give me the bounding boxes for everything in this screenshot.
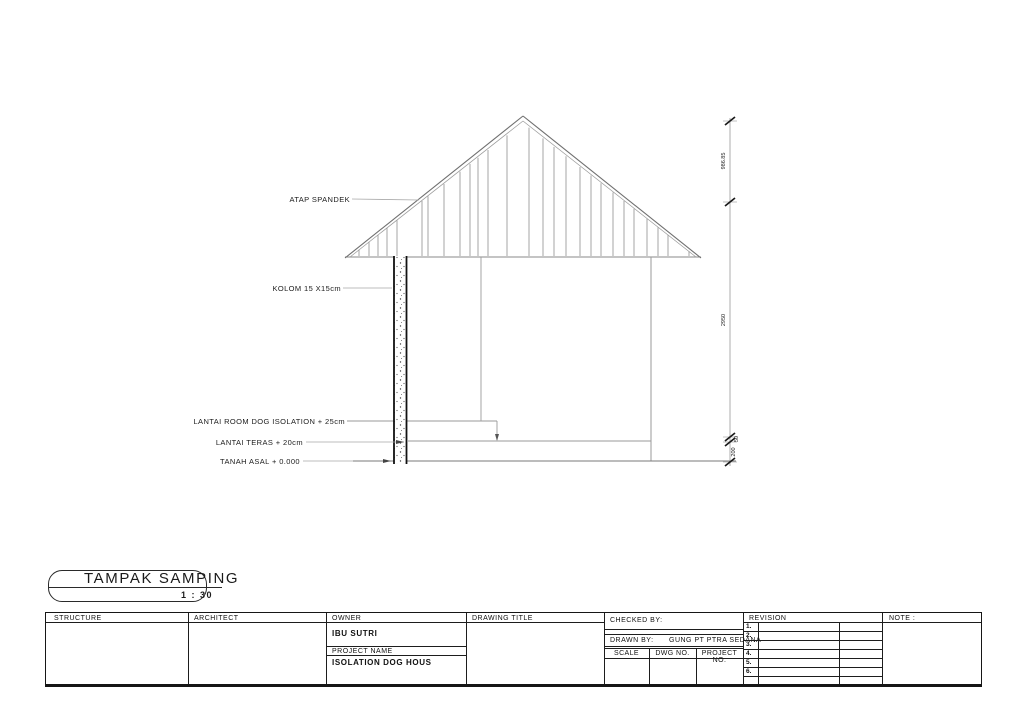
- ground-leader-arrowhead: [383, 459, 391, 463]
- revision-row-line: [743, 631, 882, 632]
- owner-value: IBU SUTRI: [332, 629, 377, 638]
- divider: [466, 613, 467, 684]
- project-name-value: ISOLATION DOG HOUS: [332, 658, 432, 667]
- drawn-by-box-bottom: [604, 646, 743, 647]
- revision-row-line: [743, 667, 882, 668]
- roof: [345, 116, 701, 258]
- drawing-title-label: DRAWING TITLE: [472, 615, 533, 622]
- owner-label: OWNER: [332, 615, 361, 622]
- scale-row-top: [604, 648, 743, 649]
- project-no-label: PROJECT NO.: [696, 650, 743, 664]
- divider: [188, 613, 189, 684]
- note-label: NOTE :: [889, 615, 915, 622]
- divider: [882, 613, 883, 684]
- side-elevation-drawing: ATAP SPANDEK KOLOM 15 X15cm LANTAI ROOM …: [0, 0, 1024, 560]
- divider: [696, 648, 697, 684]
- step-arrowhead: [495, 434, 499, 441]
- drawn-by-label: DRAWN BY:: [610, 637, 654, 644]
- header-line: [46, 622, 604, 623]
- label-lantai-isolation: LANTAI ROOM DOG ISOLATION + 25cm: [193, 417, 345, 426]
- scale-label: SCALE: [604, 650, 649, 657]
- label-kolom: KOLOM 15 X15cm: [272, 284, 341, 293]
- architect-label: ARCHITECT: [194, 615, 239, 622]
- revision-row-line: [743, 658, 882, 659]
- roof-battens: [359, 128, 689, 256]
- label-tanah-asal: TANAH ASAL + 0.000: [220, 457, 300, 466]
- annotation-labels: ATAP SPANDEK KOLOM 15 X15cm LANTAI ROOM …: [193, 195, 350, 466]
- divider: [326, 613, 327, 684]
- dim-floor-step: 50: [734, 436, 740, 442]
- dim-roof-height: 986.85: [721, 153, 727, 170]
- label-lantai-teras: LANTAI TERAS + 20cm: [216, 438, 303, 447]
- view-title: TAMPAK SAMPING: [84, 570, 239, 587]
- checked-by-box-bottom: [604, 629, 743, 630]
- revision-row-number: 4.: [746, 650, 751, 657]
- structure-label: STRUCTURE: [54, 615, 102, 622]
- revision-label: REVISION: [749, 615, 786, 622]
- revision-row-number: 2.: [746, 632, 751, 639]
- dim-teras-height: 200: [731, 447, 737, 456]
- project-name-label: PROJECT NAME: [332, 648, 393, 655]
- divider: [649, 648, 650, 684]
- dim-wall-height: 2950: [721, 314, 727, 326]
- drawing-sheet: { "drawing": { "annotations": { "roof": …: [0, 0, 1024, 724]
- revision-row-number: 6.: [746, 668, 751, 675]
- header-line: [743, 622, 981, 623]
- revision-row-line: [743, 640, 882, 641]
- view-scale: 1 : 30: [181, 590, 213, 600]
- revision-row-number: 5.: [746, 659, 751, 666]
- dimension-line: 986.85 2950 50 200: [721, 117, 740, 466]
- project-name-box-bottom: [326, 655, 466, 656]
- revision-row-line: [743, 649, 882, 650]
- label-atap-spandek: ATAP SPANDEK: [289, 195, 350, 204]
- title-block: STRUCTURE ARCHITECT OWNER IBU SUTRI PROJ…: [45, 612, 982, 687]
- view-title-underline: [48, 587, 222, 588]
- column: [394, 256, 407, 464]
- checked-by-label: CHECKED BY:: [610, 617, 663, 624]
- drawn-by-box-top: [604, 634, 743, 635]
- dwg-no-label: DWG NO.: [649, 650, 696, 657]
- revision-row-line: [743, 676, 882, 677]
- scale-row-bottom: [604, 658, 743, 659]
- revision-row-number: 1.: [746, 623, 751, 630]
- revision-row-number: 3.: [746, 641, 751, 648]
